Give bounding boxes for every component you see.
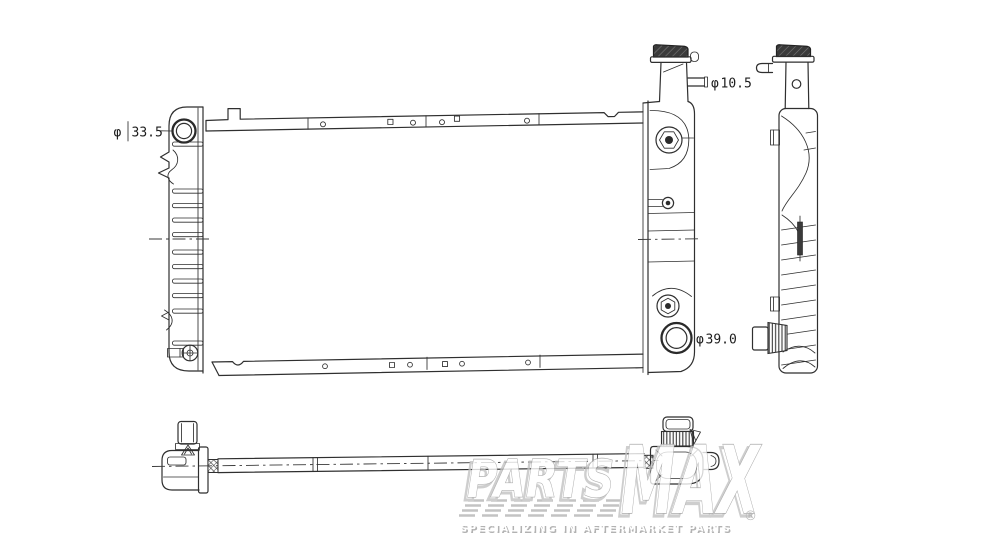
inlet-diameter-label: φ 33.5 — [114, 122, 173, 142]
radiator-cap-front — [651, 45, 699, 63]
registered-trademark-symbol: ® — [744, 509, 757, 524]
right-tank — [638, 45, 708, 375]
overflow-diameter-value: 10.5 — [721, 77, 752, 92]
drain-plug — [168, 345, 198, 361]
small-fitting — [648, 197, 674, 208]
radiator-diagram-page: φ 33.5 φ 10.5 φ 39.0 PARTS PARTS MAX MAX… — [0, 0, 990, 540]
watermark-max: MAX — [621, 427, 762, 536]
core-bottom-strip — [212, 354, 643, 375]
ribbed-hose-connector — [753, 323, 788, 354]
overflow-diameter-symbol: φ — [711, 77, 719, 92]
outlet-diameter-label: φ 39.0 — [696, 333, 737, 348]
radiator-side-view — [753, 45, 818, 373]
brand-watermark: PARTS PARTS MAX MAX ® SPECIALIZING IN AF… — [459, 427, 762, 539]
left-tank — [149, 107, 209, 373]
technical-drawing: φ 33.5 φ 10.5 φ 39.0 PARTS PARTS MAX MAX… — [0, 0, 990, 540]
radiator-front-view — [149, 45, 708, 376]
core-top-strip — [206, 109, 643, 131]
overflow-nipple — [688, 77, 708, 87]
side-nipple — [757, 64, 773, 73]
watermark-tagline: SPECIALIZING IN AFTERMARKET PARTS — [460, 524, 731, 535]
inlet-diameter-value: 33.5 — [132, 126, 163, 141]
inlet-diameter-symbol: φ — [114, 126, 122, 141]
dimension-labels: φ 33.5 φ 10.5 φ 39.0 — [114, 77, 752, 348]
watermark-parts: PARTS — [467, 450, 614, 511]
outlet-diameter-value: 39.0 — [706, 333, 737, 348]
bottom-left-bracket — [162, 422, 208, 494]
inlet-port-circle — [173, 120, 196, 143]
neck-hole — [792, 80, 801, 89]
side-tabs — [771, 130, 780, 311]
radiator-cap-side — [773, 45, 815, 62]
side-dark-bar — [798, 216, 803, 261]
outlet-diameter-symbol: φ — [696, 333, 704, 348]
overflow-diameter-label: φ 10.5 — [711, 77, 752, 92]
oil-cooler-fitting-lower — [657, 295, 679, 317]
outlet-port-circle — [662, 323, 692, 353]
